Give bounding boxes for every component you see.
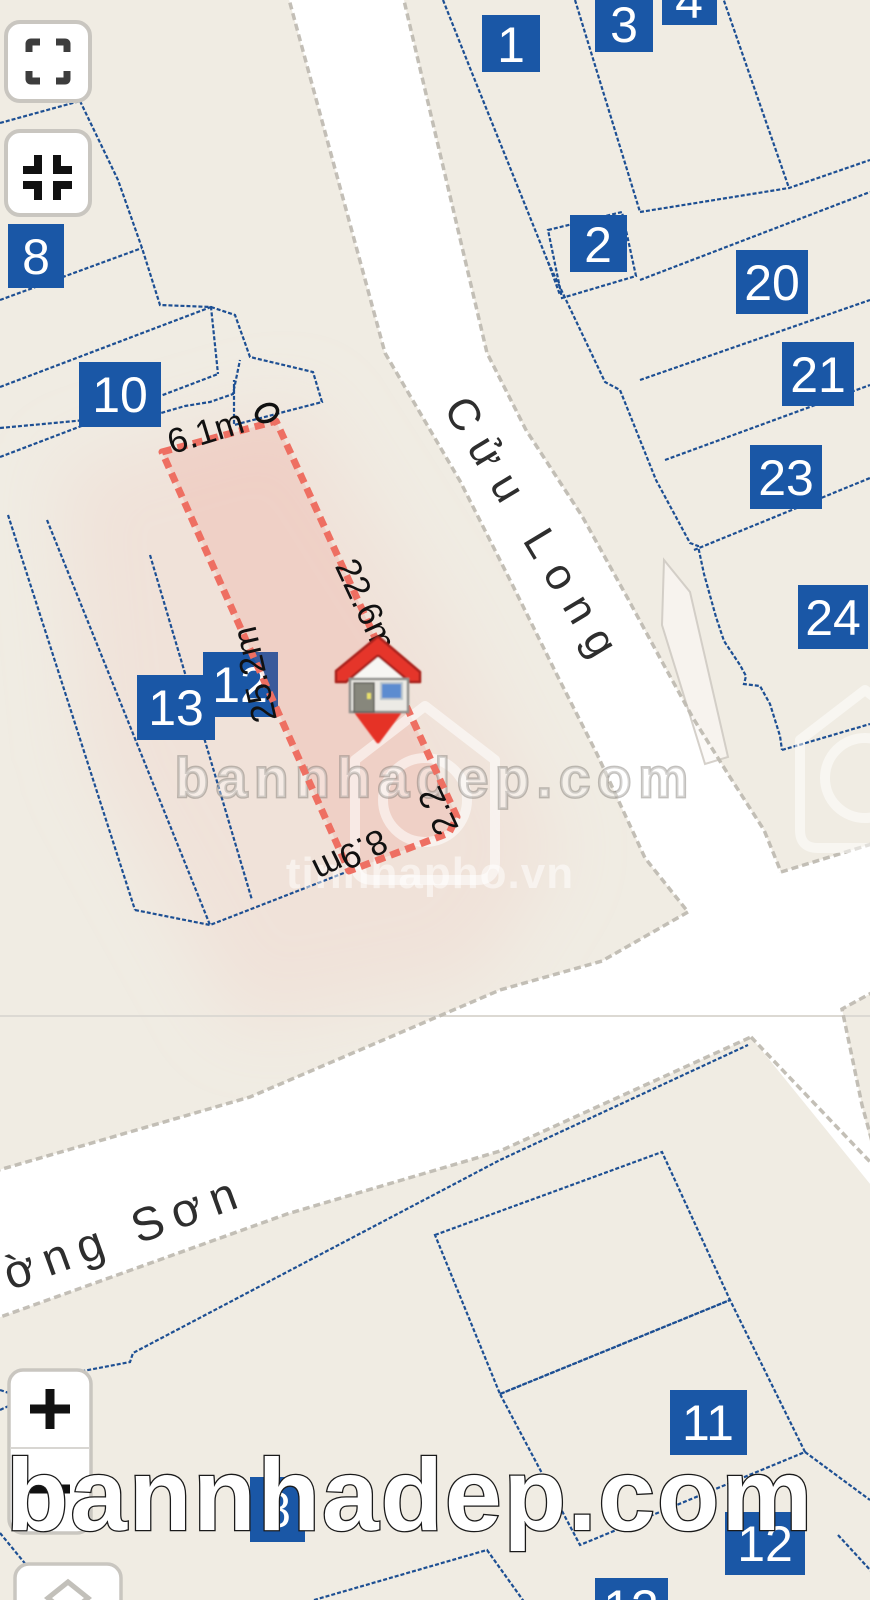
svg-text:10: 10 [92, 367, 148, 423]
svg-text:13: 13 [148, 680, 204, 736]
svg-text:bannhadep.com: bannhadep.com [6, 1438, 814, 1552]
svg-text:8: 8 [22, 229, 50, 285]
svg-text:1: 1 [497, 17, 525, 73]
svg-text:21: 21 [790, 347, 846, 403]
svg-text:3: 3 [610, 0, 638, 53]
svg-text:24: 24 [805, 590, 861, 646]
svg-text:2: 2 [584, 217, 612, 273]
svg-text:13: 13 [603, 1580, 659, 1600]
svg-text:20: 20 [744, 255, 800, 311]
svg-text:4: 4 [675, 0, 703, 29]
svg-text:23: 23 [758, 450, 814, 506]
